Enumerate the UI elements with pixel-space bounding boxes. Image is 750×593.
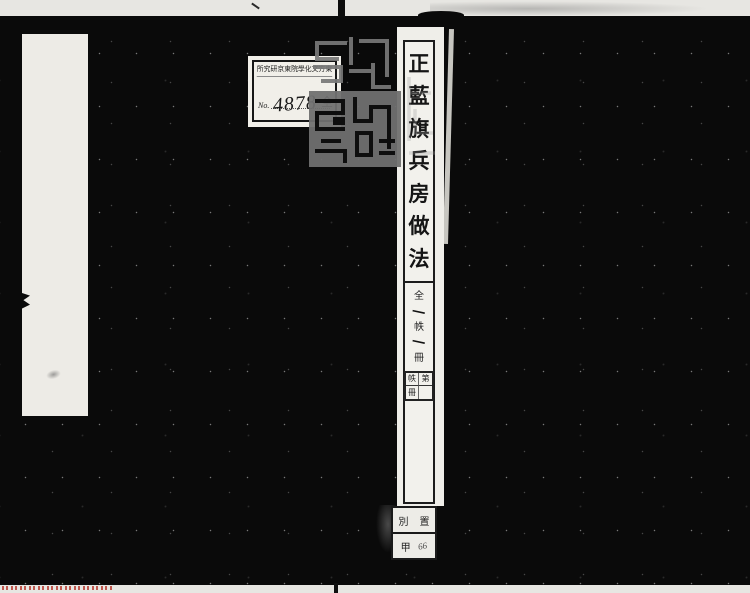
- title-char: 正: [409, 54, 430, 75]
- title-slip-blank-area: [405, 401, 433, 502]
- shelf-mark-row-top: 別 置: [393, 508, 435, 534]
- shelf-mark-class: 甲: [401, 539, 411, 554]
- title-char: 兵: [409, 151, 430, 172]
- form-cell: 第: [419, 373, 432, 386]
- form-cell: 冊: [406, 386, 419, 399]
- title-char: 房: [409, 184, 430, 205]
- count-one-handwritten: 一: [412, 339, 426, 348]
- black-cloth-cover: [0, 16, 750, 585]
- count-chitsu: 帙: [414, 323, 424, 333]
- institution-name: 所究研京東院學化文方東: [257, 64, 332, 77]
- accession-number-row: No. 4878 全: [256, 77, 333, 117]
- title-slip-frame: 正 藍 旗 兵 房 做 法 全 一 帙 一 冊 帙 第 冊: [403, 40, 435, 504]
- book-title-vertical: 正 藍 旗 兵 房 做 法: [405, 42, 433, 283]
- strip-notch: [19, 292, 30, 310]
- blank-spine-strip: [22, 34, 88, 416]
- title-slip: 正 藍 旗 兵 房 做 法 全 一 帙 一 冊 帙 第 冊: [397, 27, 444, 506]
- fascicle-form-box: 帙 第 冊: [404, 371, 434, 401]
- red-watermark-text: [2, 586, 114, 590]
- no-prefix: No.: [258, 101, 269, 110]
- title-char: 旗: [409, 119, 430, 140]
- form-cell: [419, 386, 432, 399]
- shelf-mark-label: 別 置 甲 66: [391, 506, 437, 560]
- count-zen: 全: [414, 292, 424, 302]
- scan-speck: [251, 3, 260, 10]
- cover-edge-bump: [418, 11, 464, 19]
- scan-smudge: [430, 1, 710, 15]
- title-char: 做: [409, 216, 430, 237]
- volume-count-column: 全 一 帙 一 冊: [405, 283, 433, 371]
- binding-gap-top: [338, 0, 345, 17]
- volume-note: 全: [321, 93, 333, 110]
- book-cover-scan: 所究研京東院學化文方東 No. 4878 全: [0, 0, 750, 593]
- accession-label: 所究研京東院學化文方東 No. 4878 全: [248, 56, 341, 127]
- accession-number: 4878: [272, 92, 317, 115]
- shelf-mark-number-handwritten: 66: [418, 540, 429, 551]
- shelf-mark-cell: 別: [399, 513, 409, 528]
- accession-label-frame: 所究研京東院學化文方東 No. 4878 全: [252, 60, 337, 122]
- binding-gap-bottom: [334, 583, 338, 593]
- title-char: 藍: [409, 86, 430, 107]
- shelf-mark-cell: 置: [420, 513, 430, 528]
- shelf-mark-row-bottom: 甲 66: [393, 534, 435, 558]
- count-one-handwritten: 一: [412, 308, 426, 317]
- form-cell: 帙: [406, 373, 419, 386]
- strip-smear: [45, 368, 62, 381]
- count-satsu: 冊: [414, 354, 424, 364]
- title-char: 法: [409, 249, 430, 270]
